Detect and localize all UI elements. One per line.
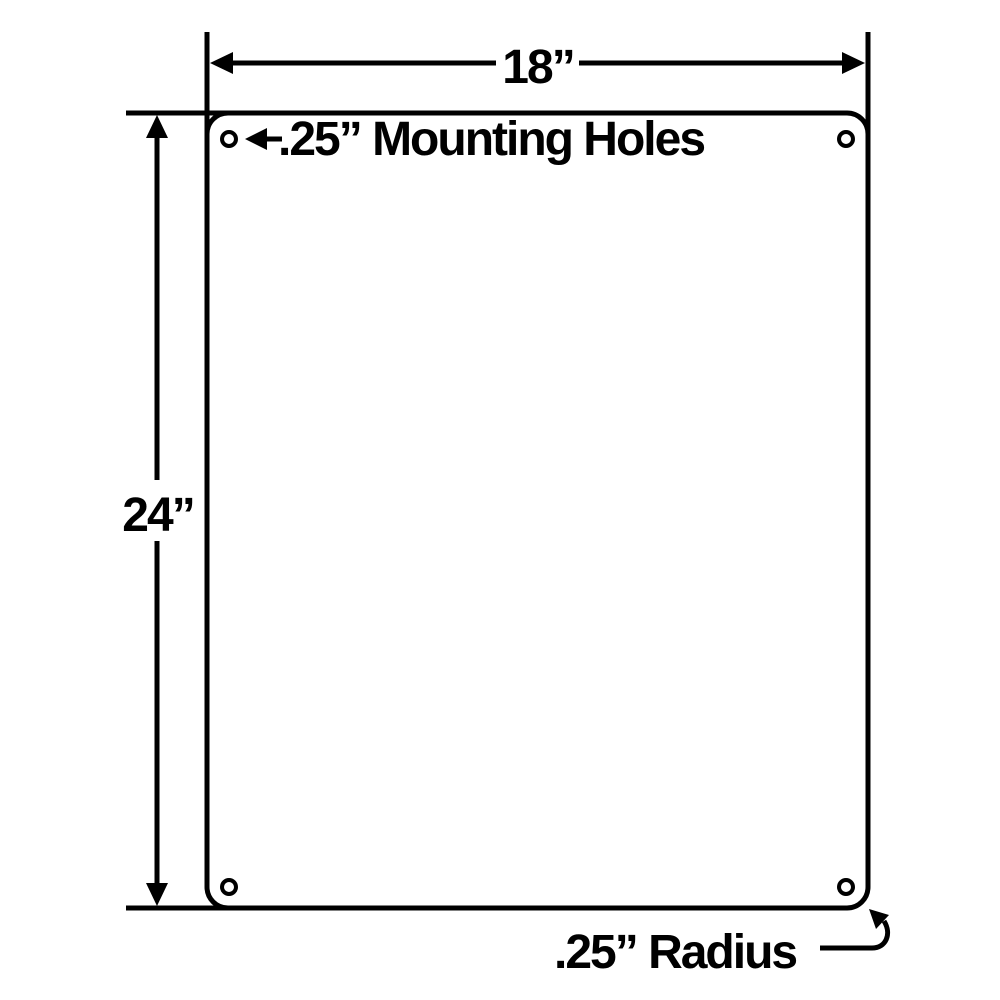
height-dimension-label: 24”	[122, 489, 193, 542]
mounting-hole-top-right	[839, 132, 853, 146]
mounting-hole-bottom-right	[839, 880, 853, 894]
panel-outline	[207, 113, 868, 908]
mounting-holes-label: .25” Mounting Holes	[278, 113, 704, 166]
width-dimension-label: 18”	[502, 41, 573, 94]
mounting-holes-arrowhead-icon	[245, 128, 267, 150]
width-arrowhead-right	[842, 52, 865, 74]
mounting-hole-bottom-left	[222, 880, 236, 894]
mounting-hole-top-left	[222, 132, 236, 146]
corner-radius-label: .25” Radius	[554, 926, 796, 979]
dimensional-drawing: 18” 24” .25” Mounting Holes .25” Radius	[0, 0, 1000, 1000]
height-arrowhead-top	[146, 115, 168, 138]
drawing-canvas: 18” 24” .25” Mounting Holes .25” Radius	[0, 0, 1000, 1000]
width-arrowhead-left	[210, 52, 233, 74]
height-arrowhead-bottom	[146, 883, 168, 906]
